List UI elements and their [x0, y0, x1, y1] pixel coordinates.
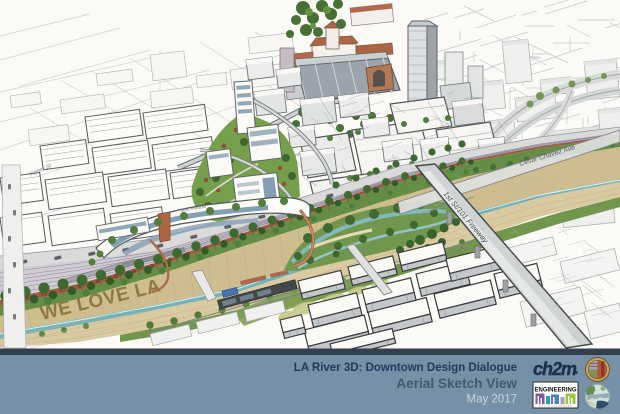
svg-text:ch2m: ch2m [533, 359, 577, 379]
svg-text:LA River 3D: Downtown Design D: LA River 3D: Downtown Design Dialogue [294, 362, 517, 374]
svg-text:ENGINEERING: ENGINEERING [534, 388, 576, 394]
svg-text:Aerial Sketch View: Aerial Sketch View [396, 376, 517, 391]
svg-text:CITY OF LOS ANGELES: CITY OF LOS ANGELES [539, 404, 572, 408]
svg-text:May 2017: May 2017 [466, 394, 517, 406]
